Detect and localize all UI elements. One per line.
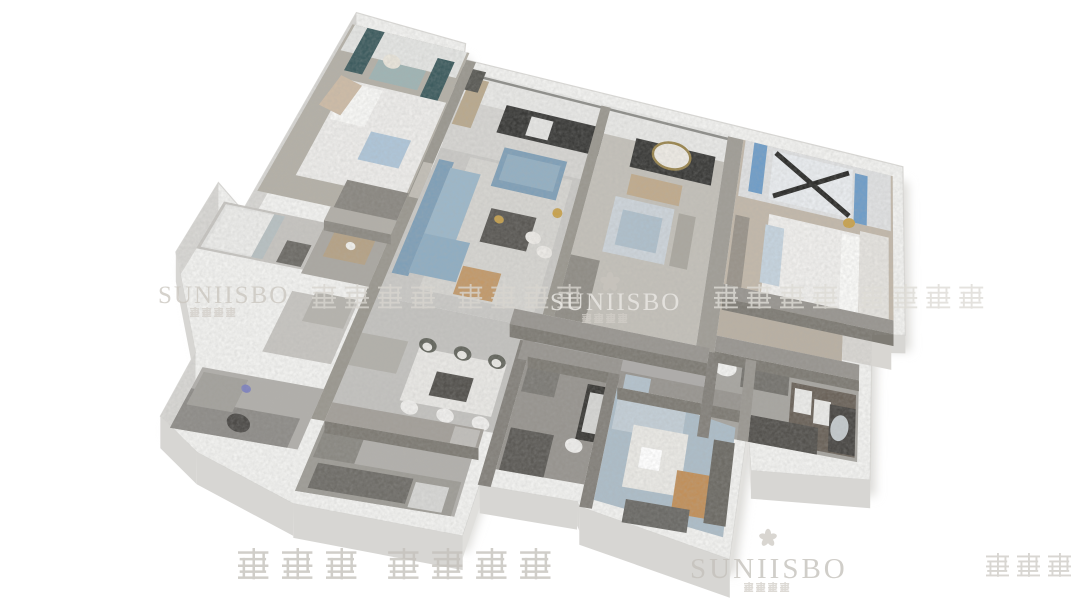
svg-text:SUNIISBO: SUNIISBO — [550, 289, 681, 316]
svg-text:SUNIISBO: SUNIISBO — [690, 553, 848, 585]
svg-text:SUNIISBO: SUNIISBO — [158, 282, 289, 309]
